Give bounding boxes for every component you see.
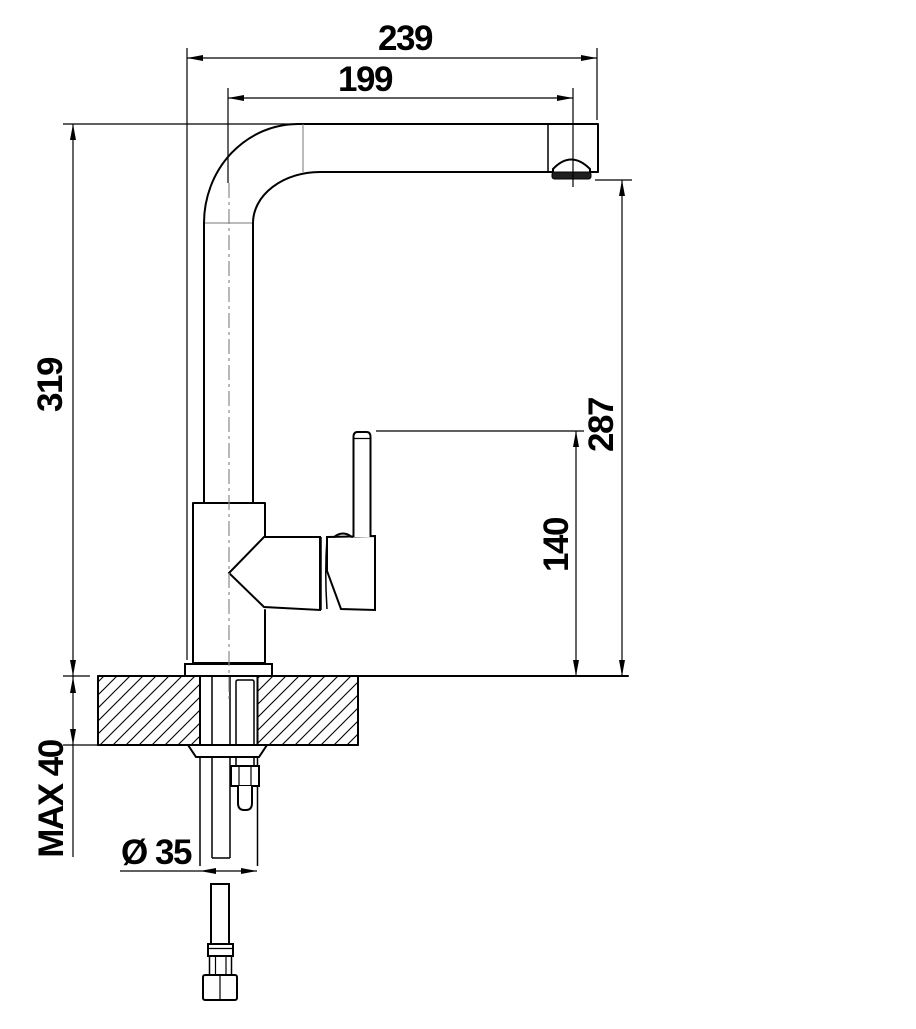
label-outlet-height: 287 — [582, 398, 621, 452]
hose-fitting-facets — [216, 956, 227, 975]
countertop-section — [98, 676, 628, 745]
supply-hose — [211, 884, 229, 944]
bend-inner-curve — [253, 172, 320, 223]
countertop-hatch-left — [98, 677, 200, 744]
mounting-washer — [188, 745, 267, 757]
label-max-thickness: MAX 40 — [32, 739, 71, 857]
label-total-projection: 239 — [378, 19, 433, 58]
hose-compression-fitting — [210, 956, 232, 975]
label-total-height: 319 — [31, 357, 70, 412]
label-lever-height: 140 — [537, 517, 576, 572]
label-hole-diameter: Ø 35 — [121, 833, 192, 872]
supply-pipe — [212, 677, 230, 858]
countertop-hatch-right — [258, 677, 359, 744]
handle-lever — [354, 432, 371, 537]
handle-base — [327, 536, 375, 610]
aerator-outlet-face — [552, 172, 591, 179]
cartridge-connector — [229, 537, 320, 610]
label-spout-projection: 199 — [338, 60, 393, 99]
bend-outer-curve — [204, 124, 298, 223]
faucet-outline — [185, 124, 598, 676]
mounting-nut — [231, 766, 259, 786]
bend-tangent-lines — [204, 124, 303, 223]
faucet-technical-drawing: 239 199 319 287 140 MAX 40 Ø 35 — [0, 0, 916, 1024]
stud-lower-end — [238, 786, 252, 810]
hose-ferrule — [208, 944, 233, 956]
technical-drawing-page: 239 199 319 287 140 MAX 40 Ø 35 — [0, 0, 916, 1024]
aerator-dome — [553, 160, 590, 173]
spout-tube — [298, 124, 598, 172]
mounting-assembly — [188, 677, 267, 1000]
